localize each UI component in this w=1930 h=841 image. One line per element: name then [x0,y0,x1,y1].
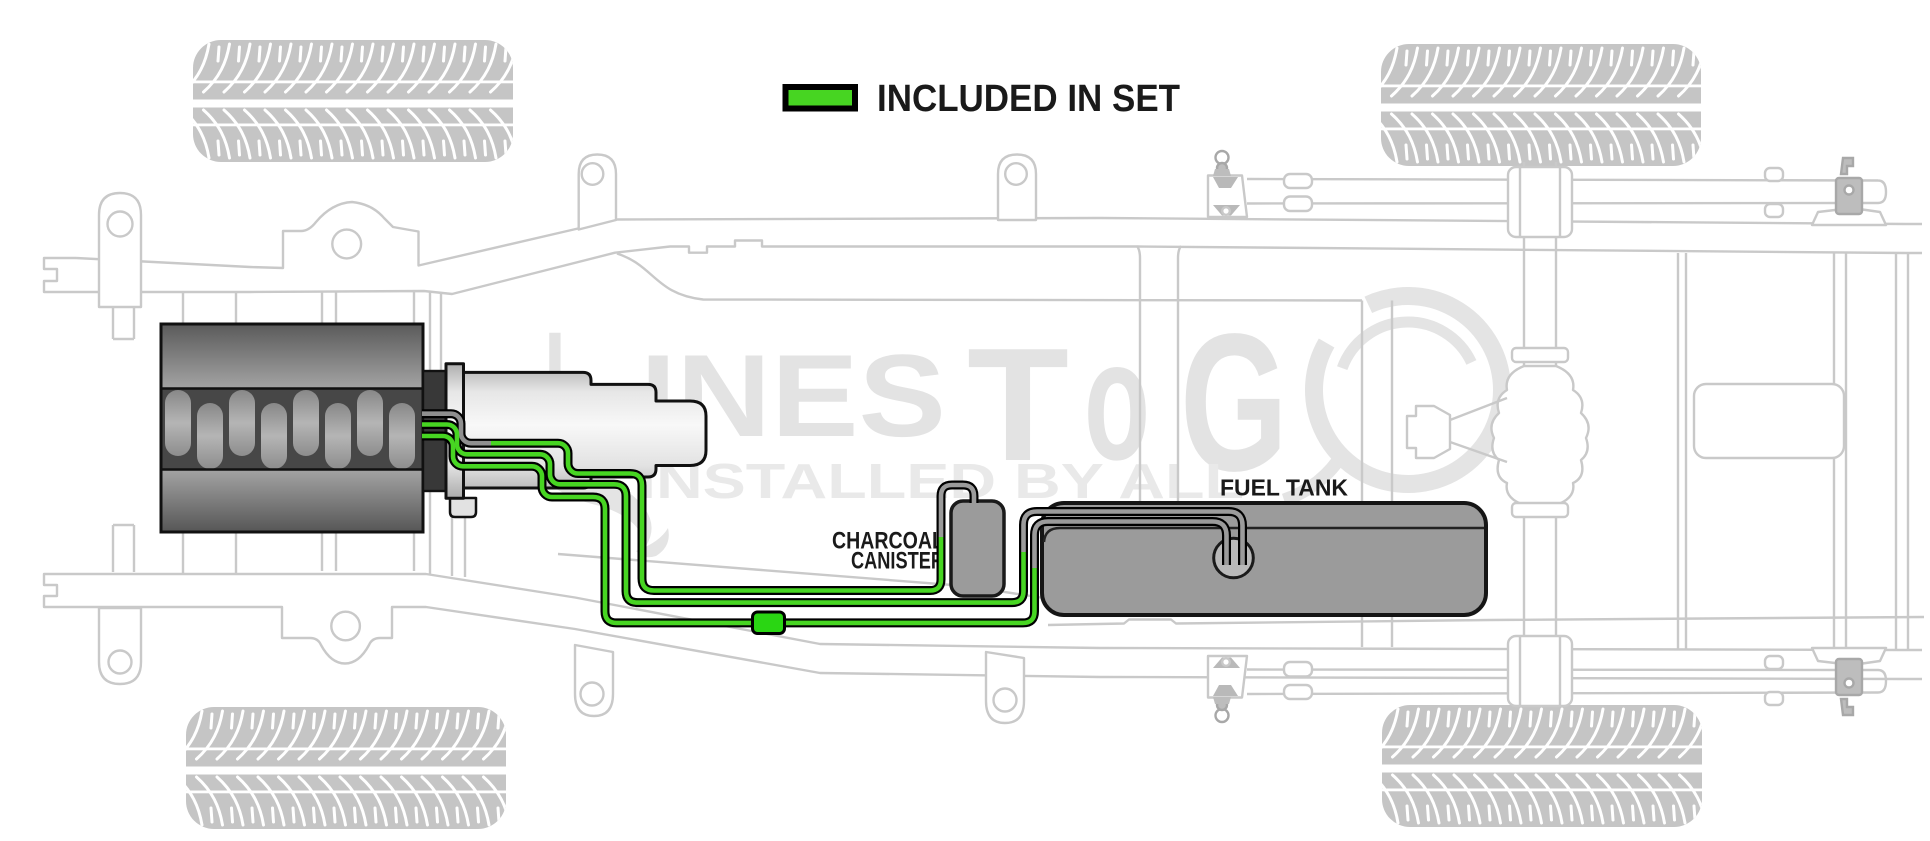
svg-text:CANISTER: CANISTER [851,548,944,575]
svg-text:FUEL TANK: FUEL TANK [1220,475,1348,501]
svg-text:INCLUDED IN SET: INCLUDED IN SET [877,78,1180,120]
